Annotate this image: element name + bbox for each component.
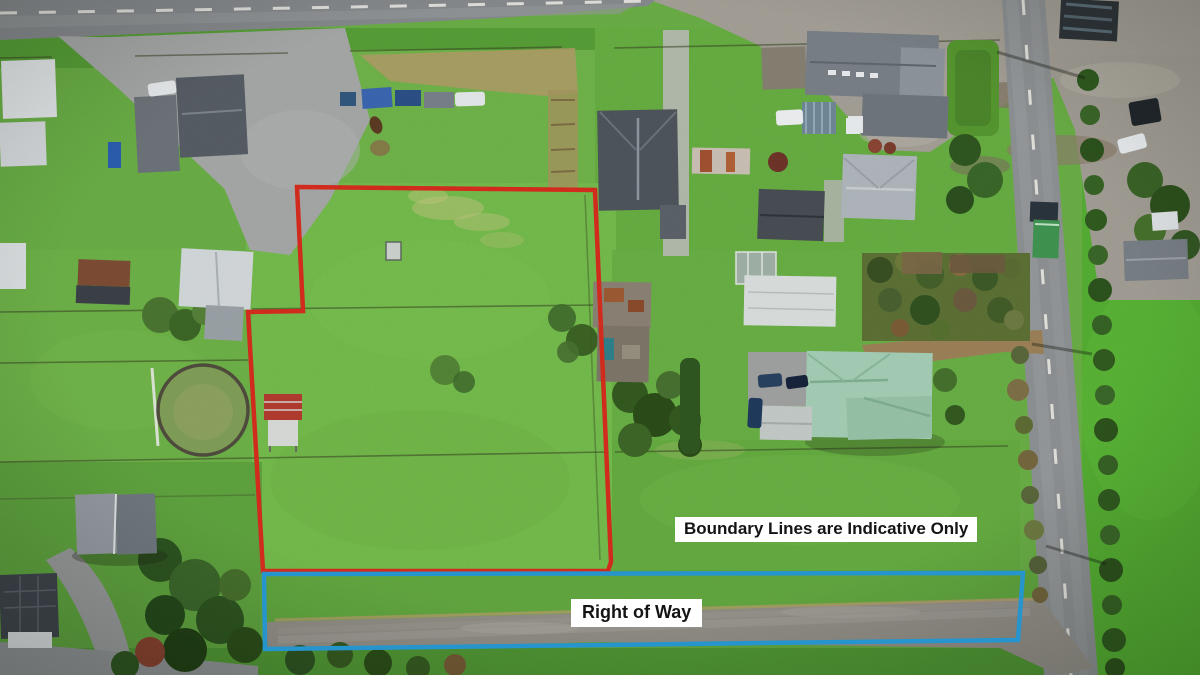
aerial-photo: Boundary Lines are Indicative Only Right… — [0, 0, 1200, 675]
aerial-scene — [0, 0, 1200, 675]
boundary-note-label: Boundary Lines are Indicative Only — [675, 517, 977, 542]
right-of-way-label: Right of Way — [571, 599, 702, 627]
